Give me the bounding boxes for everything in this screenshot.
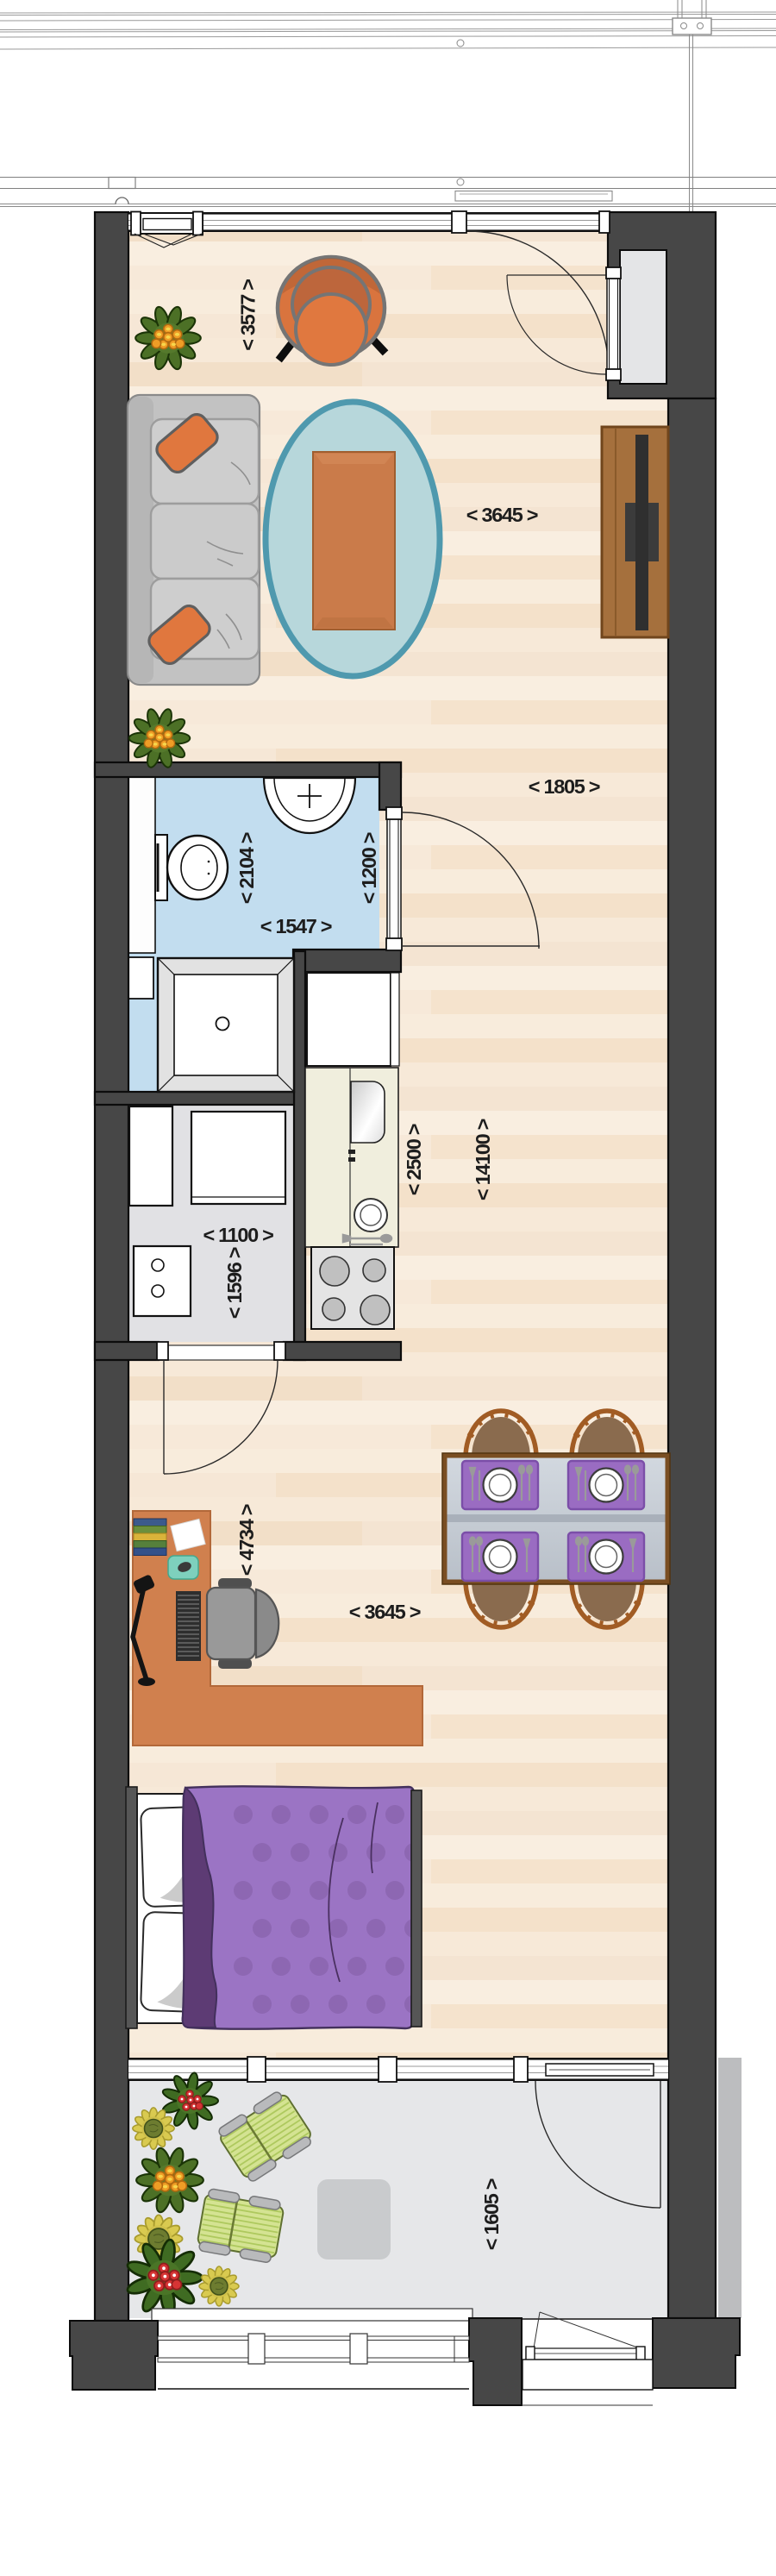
- svg-text:< 4734 >: < 4734 >: [235, 1504, 258, 1576]
- svg-text:< 1805 >: < 1805 >: [529, 775, 600, 798]
- svg-text:< 1596 >: < 1596 >: [223, 1247, 246, 1319]
- svg-text:< 3577 >: < 3577 >: [237, 279, 260, 351]
- svg-text:< 2500 >: < 2500 >: [403, 1124, 425, 1195]
- svg-text:< 3645 >: < 3645 >: [466, 504, 538, 526]
- svg-text:< 1100 >: < 1100 >: [203, 1224, 273, 1246]
- svg-text:< 1605 >: < 1605 >: [480, 2178, 503, 2250]
- svg-text:< 3645 >: < 3645 >: [349, 1601, 421, 1623]
- svg-text:< 1200 >: < 1200 >: [358, 832, 380, 904]
- svg-text:< 2104 >: < 2104 >: [235, 832, 258, 904]
- svg-text:< 1547 >: < 1547 >: [260, 915, 332, 937]
- svg-text:< 14100 >: < 14100 >: [472, 1119, 494, 1200]
